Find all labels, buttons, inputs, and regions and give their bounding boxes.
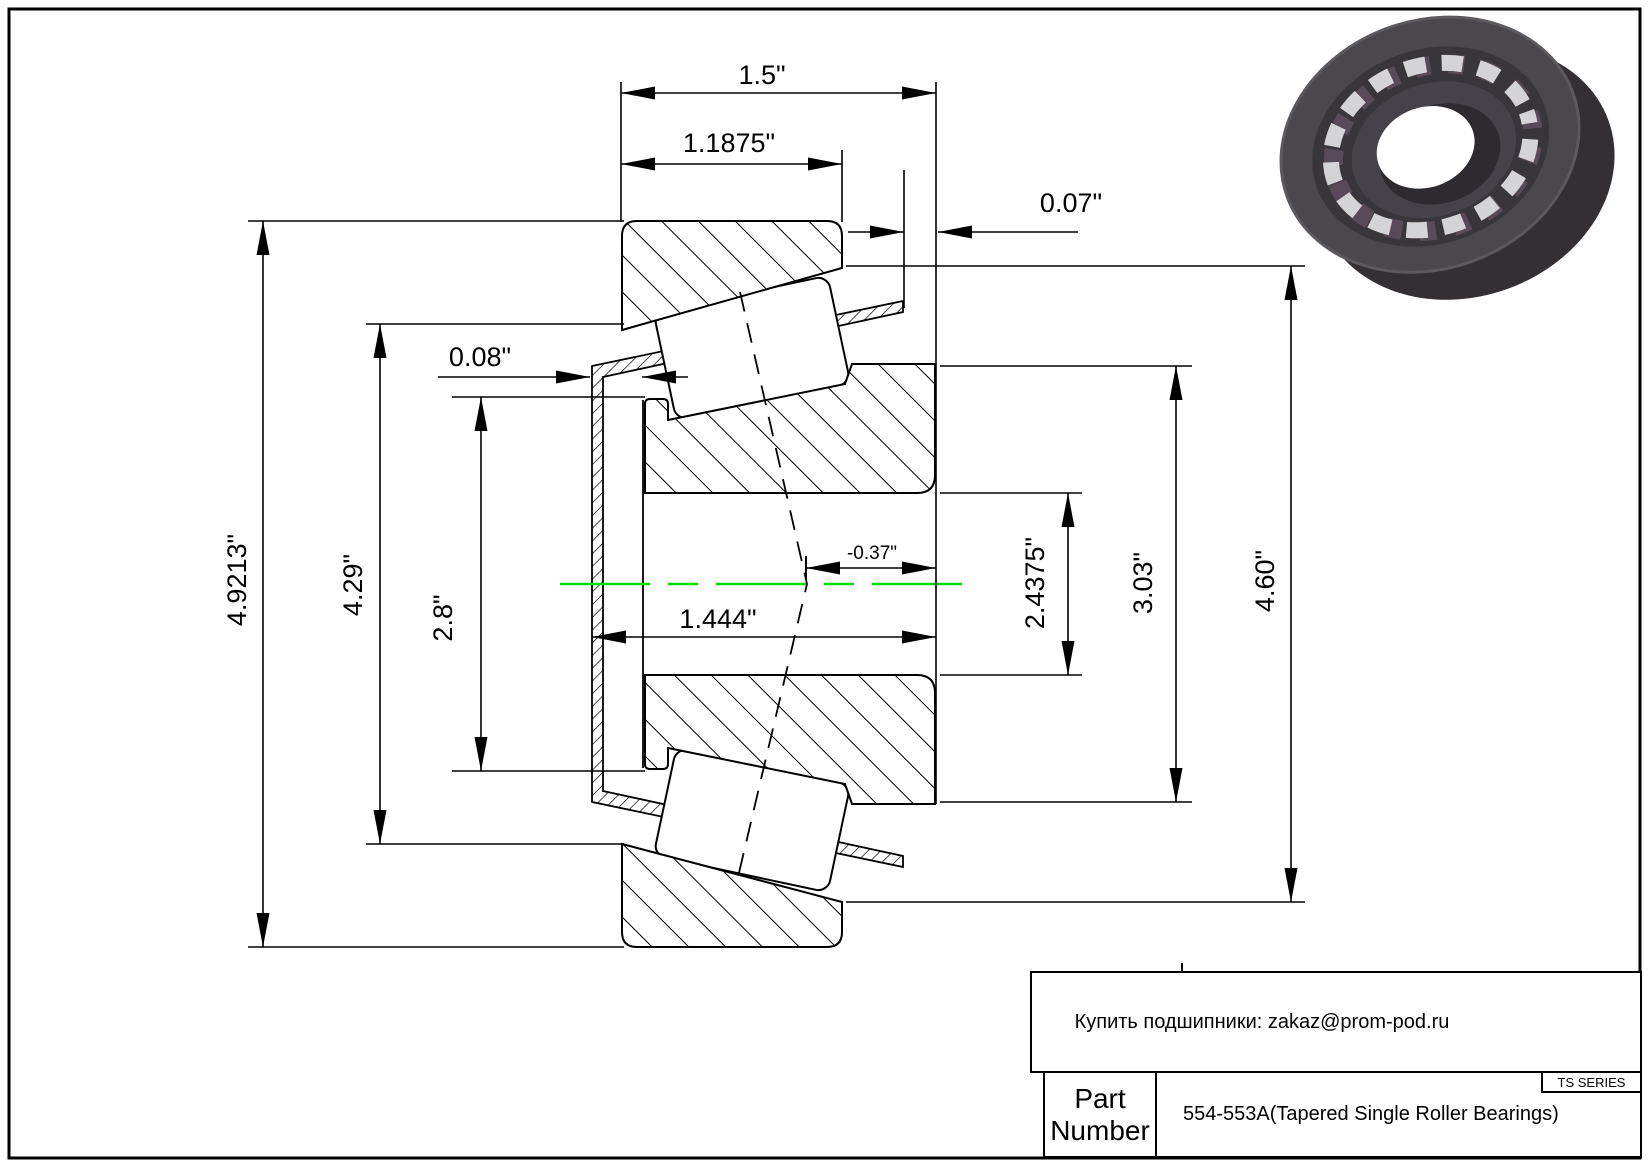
dim-label-cup-face-diameter: 4.60": [1250, 550, 1280, 612]
dim-label-cup-width: 1.1875": [683, 128, 775, 158]
dim-label-overall-width: 1.5": [738, 60, 785, 90]
drawing-page: 1.5" 1.1875" 0.07" 0.08" -0.37" 1.444" 4…: [0, 0, 1649, 1167]
vendor-note-text: Купить подшипники: zakaz@prom-pod.ru: [1075, 1011, 1450, 1034]
dim-label-cone-width: 1.444": [679, 604, 756, 634]
part-number-text: 554-553A(Tapered Single Roller Bearings): [1183, 1103, 1559, 1126]
dim-label-left-standout: 0.08": [449, 342, 511, 372]
part-label-line2: Number: [1050, 1115, 1150, 1146]
series-label-text: TS SERIES: [1558, 1075, 1626, 1090]
series-label-box: TS SERIES: [1541, 1071, 1642, 1093]
part-label-line1: Part: [1074, 1083, 1125, 1114]
dim-label-flange-diameter: 4.29": [338, 554, 368, 616]
dim-label-effective-center: -0.37": [847, 543, 897, 564]
vendor-note-box: Купить подшипники: zakaz@prom-pod.ru: [1030, 971, 1642, 1073]
bearing-photo: [1245, 0, 1649, 349]
dim-label-rib-diameter: 2.8": [428, 594, 458, 641]
dim-label-outer-diameter: 4.9213": [222, 534, 252, 626]
dim-label-right-standout: 0.07": [1040, 188, 1102, 218]
part-number-label-cell: Part Number: [1045, 1073, 1157, 1156]
dim-label-cone-back-diameter: 3.03": [1128, 552, 1158, 614]
dim-label-bore-diameter: 2.4375": [1020, 537, 1050, 629]
